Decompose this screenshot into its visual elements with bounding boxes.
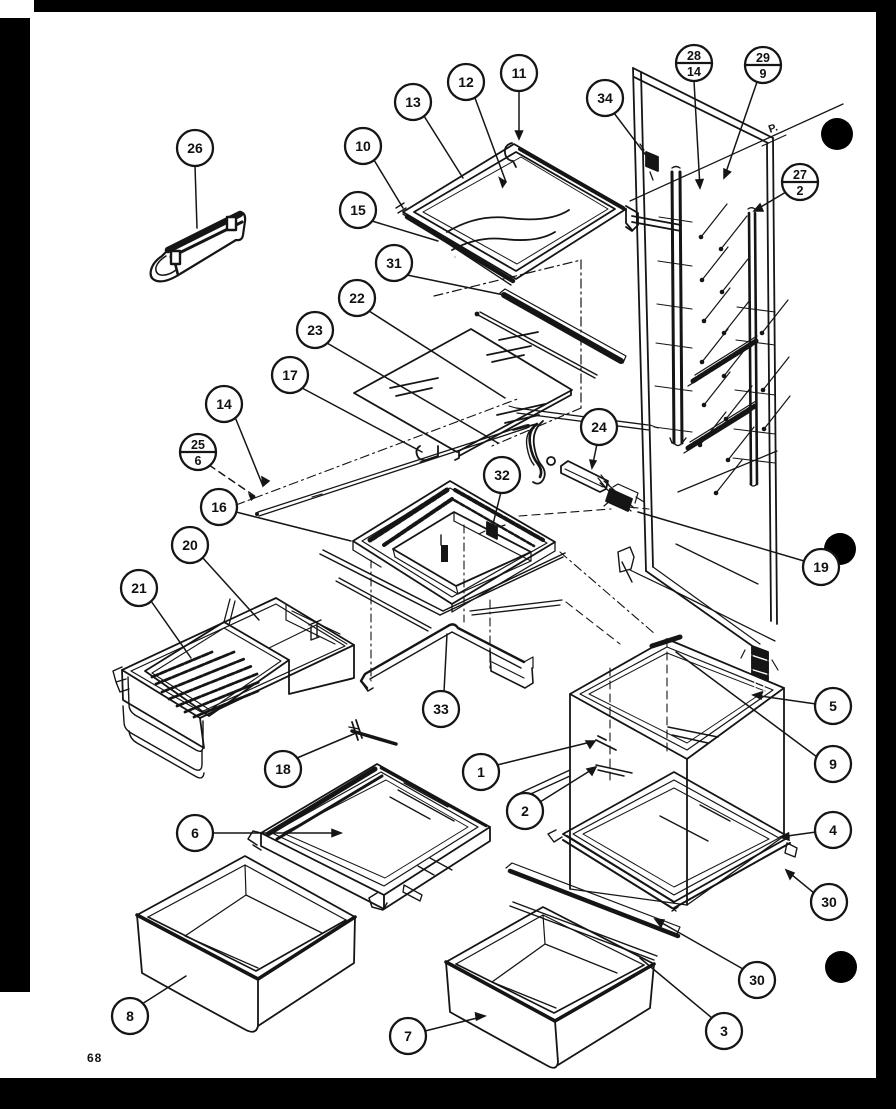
svg-text:12: 12 bbox=[458, 74, 474, 90]
svg-text:32: 32 bbox=[494, 467, 510, 483]
svg-text:14: 14 bbox=[216, 396, 232, 412]
svg-text:9: 9 bbox=[760, 67, 767, 81]
svg-text:8: 8 bbox=[126, 1008, 134, 1024]
svg-text:17: 17 bbox=[282, 367, 298, 383]
svg-text:24: 24 bbox=[591, 419, 607, 435]
svg-text:11: 11 bbox=[512, 65, 527, 81]
svg-text:6: 6 bbox=[191, 825, 199, 841]
svg-text:19: 19 bbox=[813, 559, 829, 575]
svg-text:3: 3 bbox=[720, 1023, 728, 1039]
svg-text:23: 23 bbox=[307, 322, 323, 338]
svg-text:68: 68 bbox=[87, 1051, 102, 1065]
svg-text:2: 2 bbox=[521, 803, 529, 819]
svg-text:5: 5 bbox=[829, 698, 837, 714]
svg-text:15: 15 bbox=[350, 202, 366, 218]
svg-text:4: 4 bbox=[829, 822, 837, 838]
svg-text:28: 28 bbox=[687, 49, 701, 63]
svg-text:9: 9 bbox=[829, 756, 837, 772]
svg-text:34: 34 bbox=[597, 90, 613, 106]
svg-text:33: 33 bbox=[433, 701, 449, 717]
svg-text:1: 1 bbox=[477, 764, 485, 780]
svg-text:26: 26 bbox=[187, 140, 203, 156]
svg-text:22: 22 bbox=[349, 290, 365, 306]
svg-text:31: 31 bbox=[386, 255, 402, 271]
svg-text:20: 20 bbox=[182, 537, 198, 553]
svg-text:10: 10 bbox=[355, 138, 371, 154]
svg-text:30: 30 bbox=[821, 894, 837, 910]
svg-text:7: 7 bbox=[404, 1028, 412, 1044]
svg-text:27: 27 bbox=[793, 168, 807, 182]
svg-text:30: 30 bbox=[749, 972, 765, 988]
svg-text:21: 21 bbox=[131, 580, 147, 596]
svg-text:25: 25 bbox=[191, 438, 205, 452]
svg-text:18: 18 bbox=[275, 761, 291, 777]
svg-text:29: 29 bbox=[756, 51, 770, 65]
svg-text:14: 14 bbox=[687, 65, 701, 79]
svg-text:16: 16 bbox=[211, 499, 227, 515]
svg-text:2: 2 bbox=[797, 184, 804, 198]
svg-text:13: 13 bbox=[405, 94, 421, 110]
svg-text:6: 6 bbox=[195, 454, 202, 468]
